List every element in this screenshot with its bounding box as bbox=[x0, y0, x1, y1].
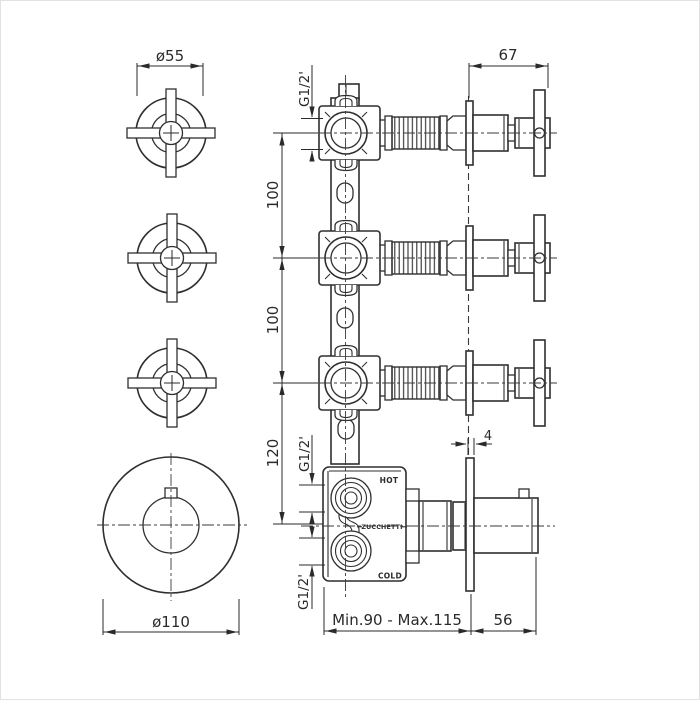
hot-inlet-port bbox=[331, 478, 371, 518]
cold-label: COLD bbox=[378, 572, 402, 581]
dim-vertical-spacing-chain: 100 100 120 bbox=[264, 133, 323, 524]
thread-label-cold: G1/2' bbox=[296, 574, 312, 610]
handle-projection-label: 67 bbox=[498, 46, 517, 64]
depth-range-label: Min.90 - Max.115 bbox=[332, 611, 462, 629]
technical-drawing-page: HOT COLD ZUCCHETTI bbox=[0, 0, 700, 700]
thread-label-hot: G1/2' bbox=[297, 436, 313, 472]
rail-slot-2 bbox=[337, 308, 353, 328]
plate-thickness-label: 4 bbox=[484, 429, 492, 444]
valve-tab-bottom bbox=[335, 160, 357, 171]
rail-slot-1 bbox=[337, 183, 353, 203]
rail-slot-3 bbox=[338, 419, 354, 439]
cold-inlet-port bbox=[331, 531, 371, 571]
cross-handle-front-1 bbox=[127, 89, 215, 177]
callout-thread-cold: G1/2' bbox=[296, 565, 325, 610]
thermostat-knob-side bbox=[474, 498, 538, 553]
cross-handle-front-2 bbox=[128, 214, 216, 302]
wall-plate-side bbox=[466, 458, 474, 591]
knob-index-tab-side bbox=[519, 489, 529, 498]
handle-diameter-label: ø55 bbox=[156, 47, 184, 65]
block-tab-upper bbox=[406, 489, 419, 501]
thread-label-top: G1/2' bbox=[297, 71, 313, 107]
thermostatic-block: HOT COLD ZUCCHETTI bbox=[323, 467, 419, 581]
spacing-label-1: 100 bbox=[264, 181, 282, 210]
dim-plate-thickness: 4 bbox=[451, 429, 492, 455]
spacing-label-2: 100 bbox=[264, 306, 282, 335]
hot-label: HOT bbox=[380, 476, 399, 485]
thermostat-cartridge-and-knob bbox=[419, 458, 538, 591]
valve-tab-top bbox=[335, 96, 357, 107]
brand-label: ZUCCHETTI bbox=[361, 524, 402, 531]
dim-plate-diameter: ø110 bbox=[103, 599, 239, 635]
mixer-technical-drawing: HOT COLD ZUCCHETTI bbox=[1, 1, 700, 701]
block-tab-lower bbox=[406, 551, 419, 563]
knob-projection-label: 56 bbox=[493, 611, 512, 629]
callout-thread-hot: G1/2' bbox=[297, 435, 325, 538]
plate-diameter-label: ø110 bbox=[152, 613, 190, 631]
spacing-label-3: 120 bbox=[264, 439, 282, 468]
cross-handle-front-3 bbox=[128, 339, 216, 427]
